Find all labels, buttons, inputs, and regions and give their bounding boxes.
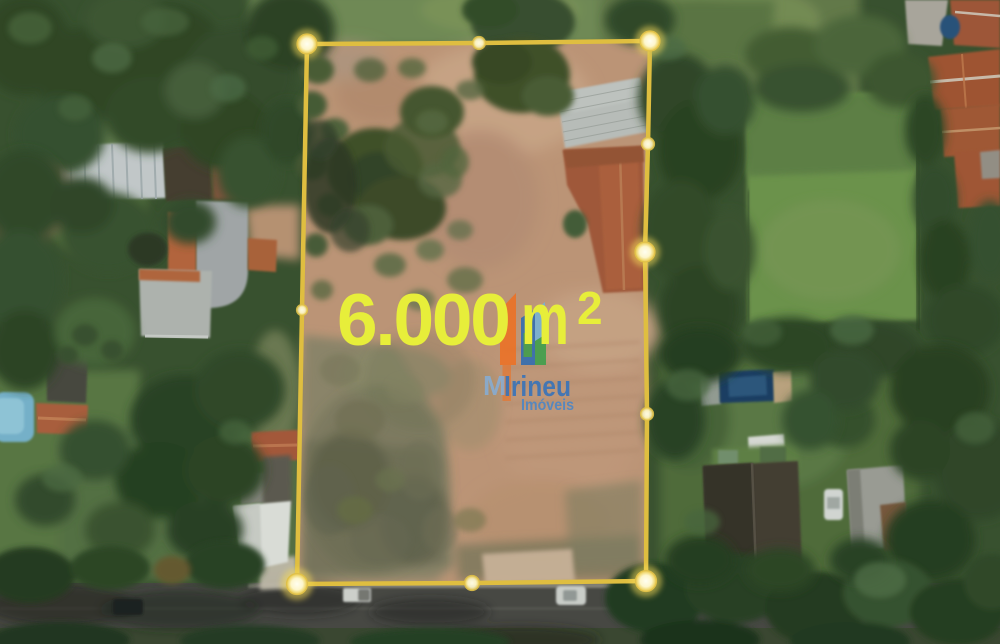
svg-text:2: 2 — [577, 282, 603, 334]
svg-text:M: M — [483, 370, 506, 401]
svg-text:Imóveis: Imóveis — [521, 397, 574, 414]
svg-text:m: m — [521, 279, 569, 360]
svg-text:6.000: 6.000 — [337, 280, 509, 361]
